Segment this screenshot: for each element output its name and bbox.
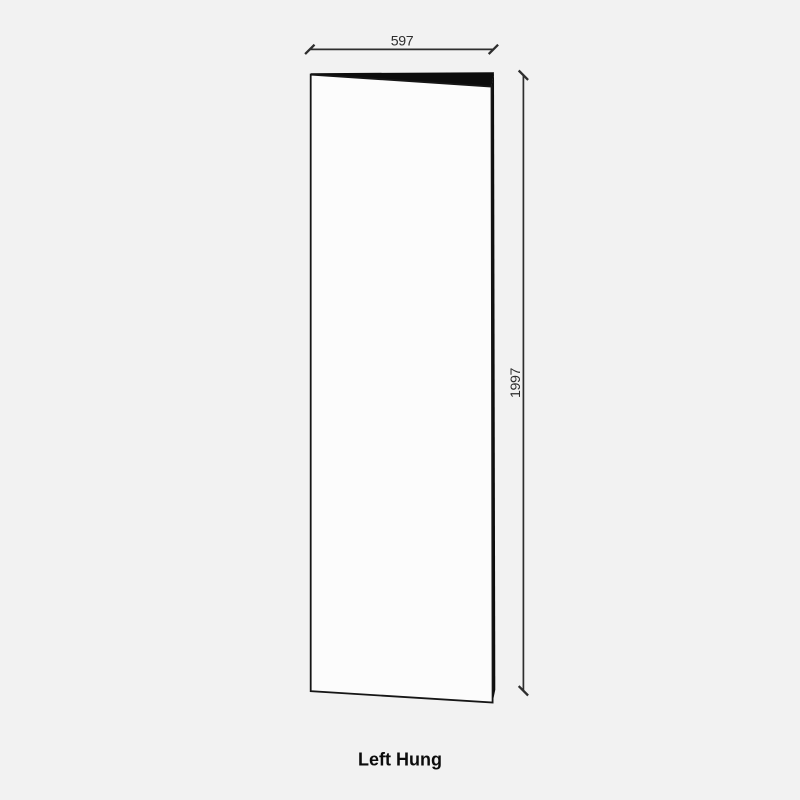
- svg-text:597: 597: [391, 34, 414, 50]
- svg-text:Left Hung: Left Hung: [358, 749, 442, 769]
- svg-text:1997: 1997: [508, 368, 524, 398]
